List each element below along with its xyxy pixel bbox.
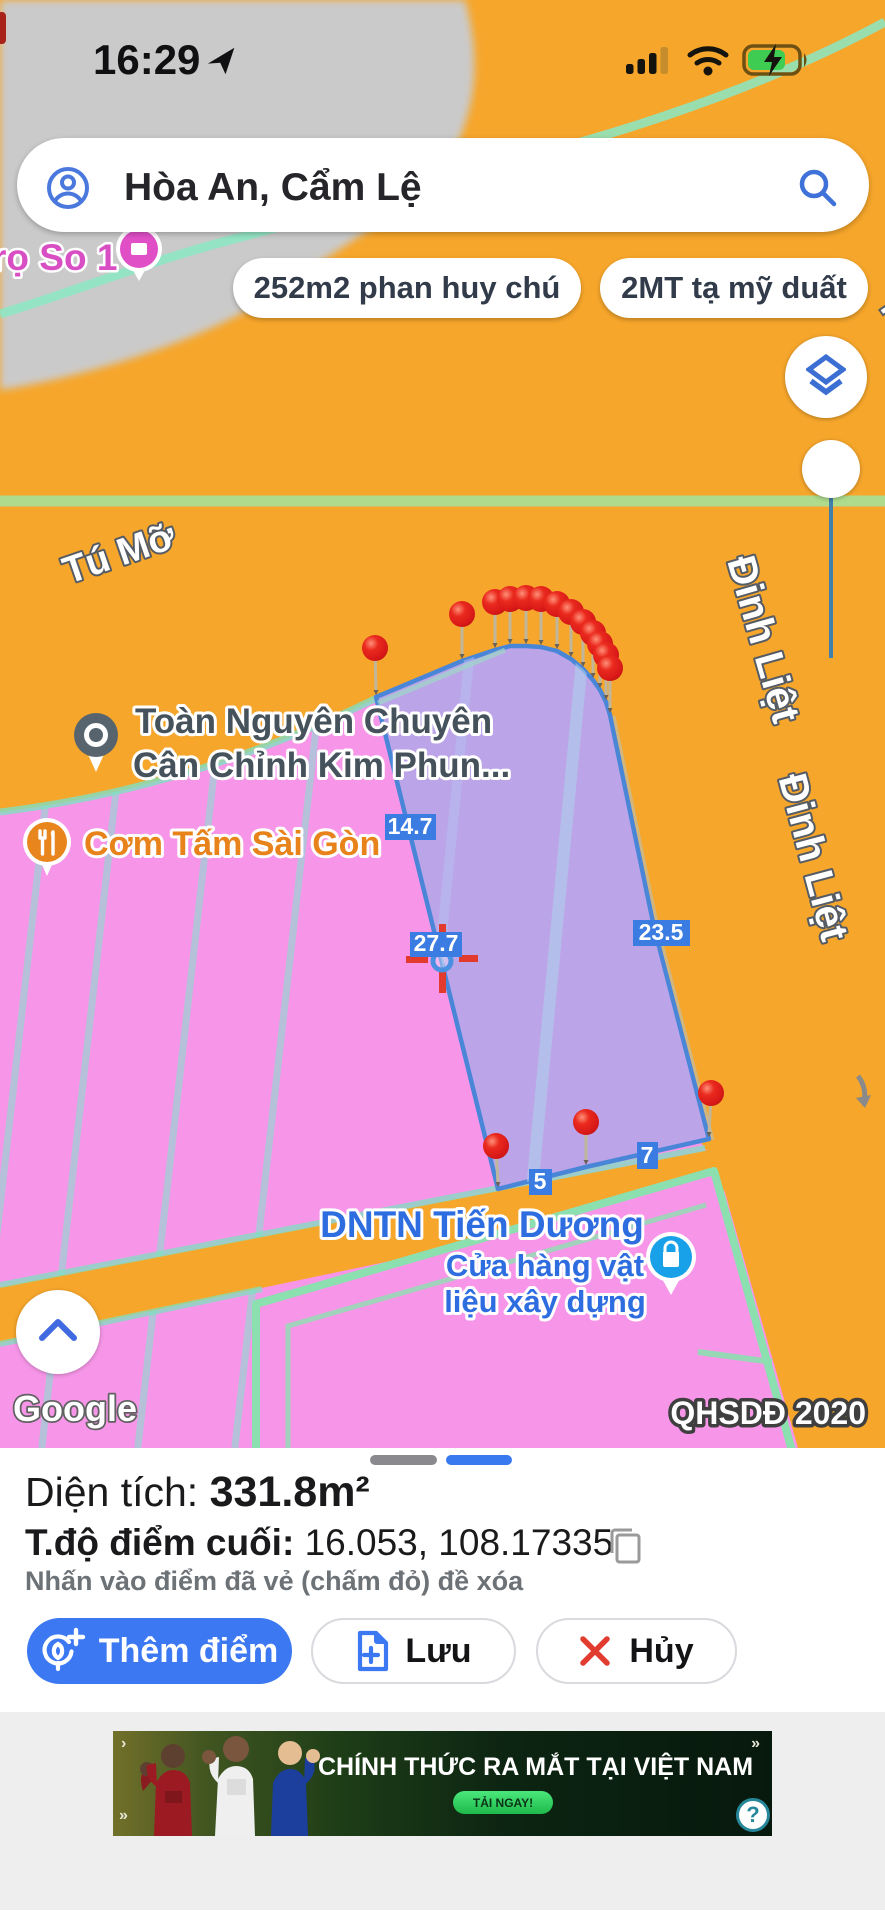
svg-text:23.5: 23.5 [639,919,684,945]
svg-text:27.7: 27.7 [414,930,459,956]
svg-text:liệu xây dựng: liệu xây dựng [444,1284,646,1319]
svg-text:rọ So 1: rọ So 1 [0,237,117,278]
svg-text:5: 5 [534,1168,547,1194]
svg-text:DNTN Tiến Dương: DNTN Tiến Dương [320,1204,644,1245]
svg-text:QHSDĐ 2020: QHSDĐ 2020 [670,1395,866,1431]
svg-text:Cửa hàng vật: Cửa hàng vật [446,1248,644,1283]
svg-text:Google: Google [13,1388,137,1429]
svg-text:7: 7 [641,1142,654,1168]
svg-text:14.7: 14.7 [388,813,433,839]
svg-text:Toàn Nguyên Chuyên: Toàn Nguyên Chuyên [135,702,492,741]
svg-text:Cân Chỉnh Kim Phun...: Cân Chỉnh Kim Phun... [133,746,510,785]
svg-text:Cơm Tấm Sài Gòn: Cơm Tấm Sài Gòn [84,825,380,863]
